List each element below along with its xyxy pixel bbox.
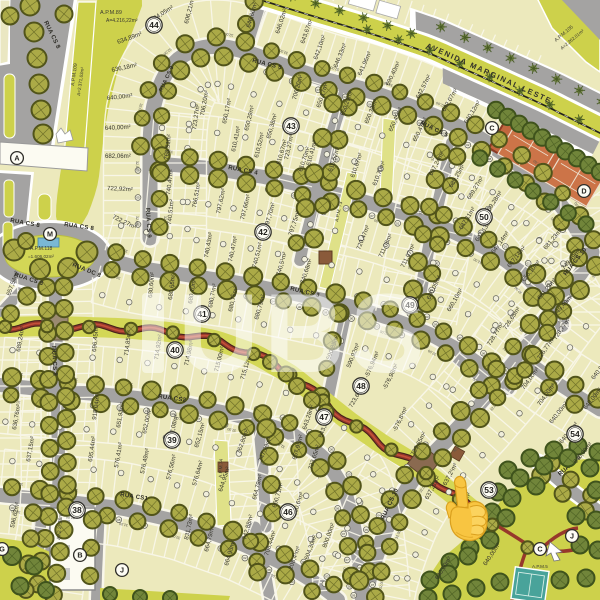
- svg-text:06: 06: [482, 351, 486, 355]
- svg-text:06: 06: [336, 507, 340, 511]
- svg-text:07: 07: [371, 583, 375, 587]
- svg-text:D: D: [581, 187, 586, 196]
- svg-text:A=4.216,22m²: A=4.216,22m²: [106, 18, 138, 24]
- svg-text:01: 01: [504, 245, 508, 249]
- svg-text:32,00: 32,00: [135, 161, 139, 170]
- svg-text:03: 03: [347, 473, 351, 477]
- svg-text:44: 44: [149, 20, 159, 30]
- svg-text:UBS: UBS: [178, 271, 429, 396]
- svg-text:39: 39: [167, 435, 177, 445]
- svg-text:09: 09: [352, 593, 356, 597]
- svg-text:01: 01: [396, 221, 400, 225]
- svg-text:C: C: [489, 124, 494, 133]
- svg-text:53: 53: [484, 485, 494, 495]
- svg-text:54: 54: [570, 429, 580, 439]
- svg-text:46: 46: [283, 507, 293, 517]
- svg-text:07: 07: [370, 214, 374, 218]
- svg-text:47: 47: [319, 412, 329, 422]
- svg-text:01: 01: [527, 261, 531, 265]
- svg-text:A.P.M.89: A.P.M.89: [100, 10, 122, 16]
- svg-text:08: 08: [267, 568, 271, 572]
- svg-text:=1.606,02m²: =1.606,02m²: [28, 254, 54, 259]
- svg-text:722,92m²: 722,92m²: [107, 185, 133, 193]
- svg-text:B: B: [77, 551, 82, 560]
- svg-text:C: C: [537, 545, 542, 554]
- svg-text:08: 08: [117, 518, 121, 522]
- svg-text:A.P.M.118: A.P.M.118: [30, 246, 53, 252]
- svg-text:02: 02: [466, 143, 470, 147]
- svg-text:A.P.M.5: A.P.M.5: [532, 564, 548, 569]
- svg-text:07: 07: [342, 532, 346, 536]
- svg-text:J: J: [120, 566, 124, 575]
- svg-text:43: 43: [286, 121, 296, 131]
- svg-text:42: 42: [258, 227, 268, 237]
- svg-text:00: 00: [330, 448, 334, 452]
- svg-text:04: 04: [344, 207, 348, 211]
- svg-text:J: J: [570, 532, 574, 541]
- svg-text:640,00m²: 640,00m²: [105, 124, 131, 132]
- svg-text:A: A: [14, 154, 19, 163]
- svg-text:02: 02: [243, 556, 247, 560]
- svg-text:05: 05: [136, 196, 140, 200]
- svg-text:G: G: [0, 545, 5, 554]
- svg-text:38: 38: [72, 505, 82, 515]
- svg-text:50: 50: [479, 212, 489, 222]
- svg-text:A.P.M.74: A.P.M.74: [218, 458, 225, 478]
- svg-text:M: M: [47, 230, 53, 239]
- svg-text:07: 07: [346, 558, 350, 562]
- svg-text:682,06m²: 682,06m²: [105, 153, 131, 160]
